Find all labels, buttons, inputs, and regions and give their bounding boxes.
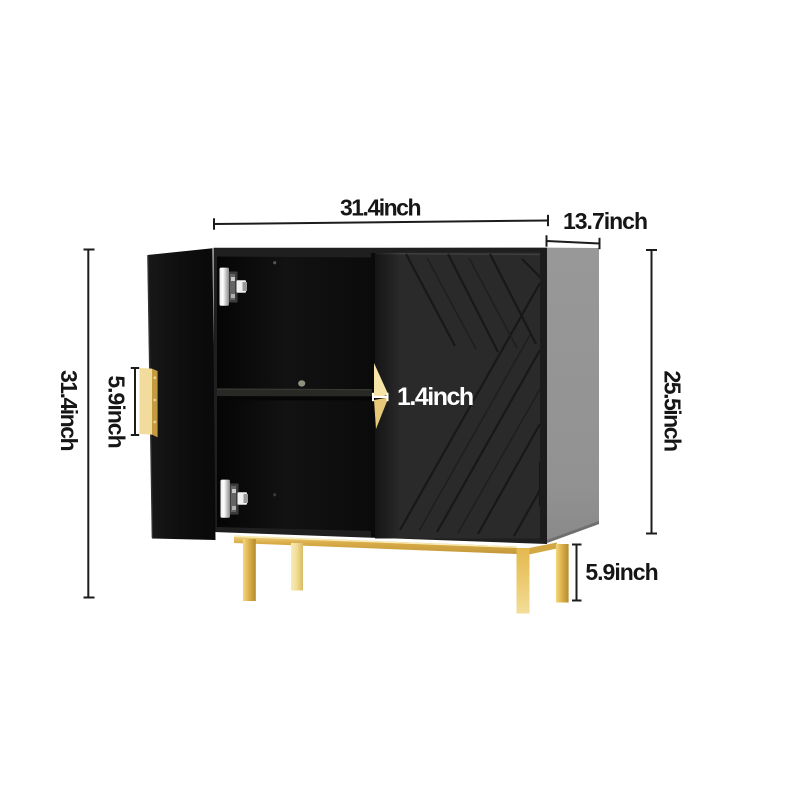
svg-text:5.9inch: 5.9inch xyxy=(104,375,130,447)
svg-text:31.4inch: 31.4inch xyxy=(56,370,82,450)
svg-text:5.9inch: 5.9inch xyxy=(585,559,657,585)
svg-text:1.4inch: 1.4inch xyxy=(397,383,473,411)
svg-text:25.5inch: 25.5inch xyxy=(660,370,686,450)
svg-text:31.4inch: 31.4inch xyxy=(340,195,420,221)
svg-text:13.7inch: 13.7inch xyxy=(563,208,647,234)
